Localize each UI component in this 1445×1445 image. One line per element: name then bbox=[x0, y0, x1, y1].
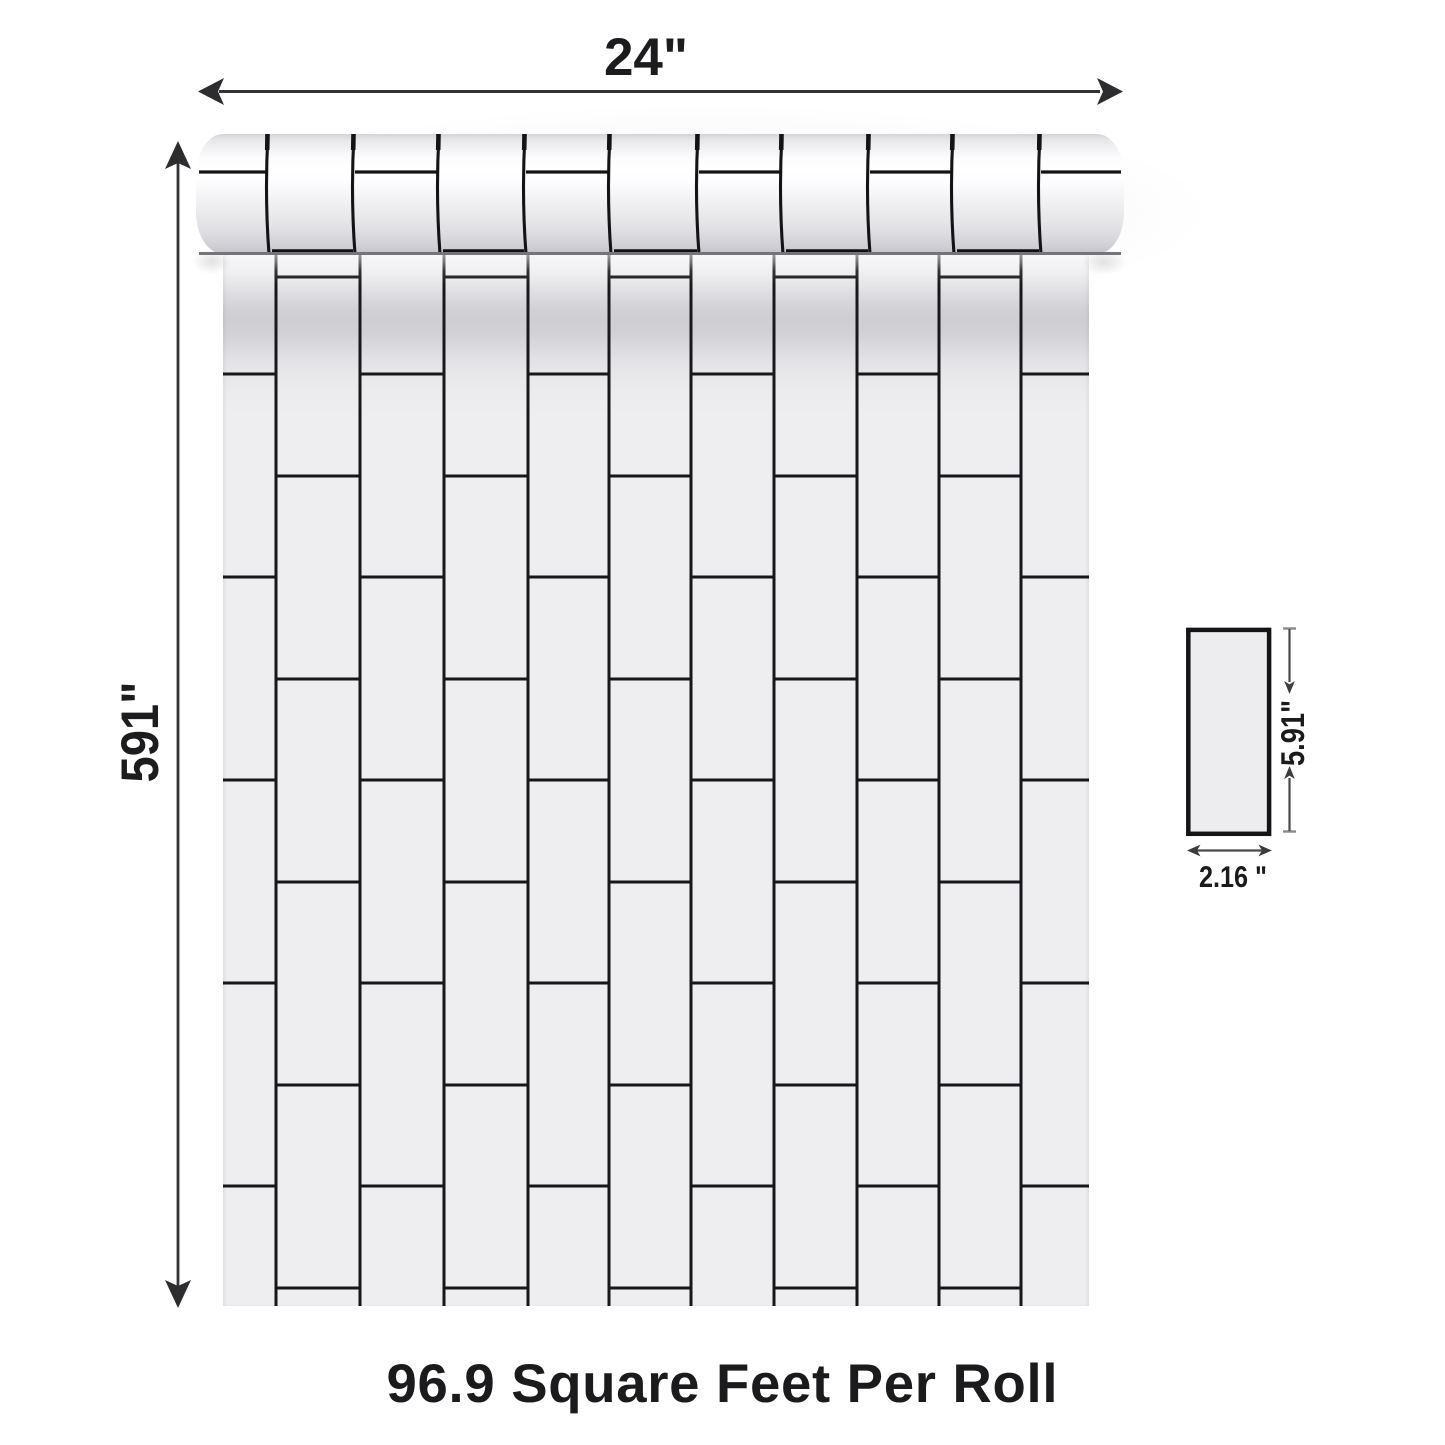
svg-text:5.91": 5.91" bbox=[1274, 700, 1311, 766]
svg-text:2.16 ": 2.16 " bbox=[1199, 861, 1267, 894]
svg-text:591": 591" bbox=[111, 682, 170, 783]
svg-text:96.9 Square Feet Per Roll: 96.9 Square Feet Per Roll bbox=[387, 1353, 1058, 1414]
svg-text:24": 24" bbox=[604, 28, 688, 87]
